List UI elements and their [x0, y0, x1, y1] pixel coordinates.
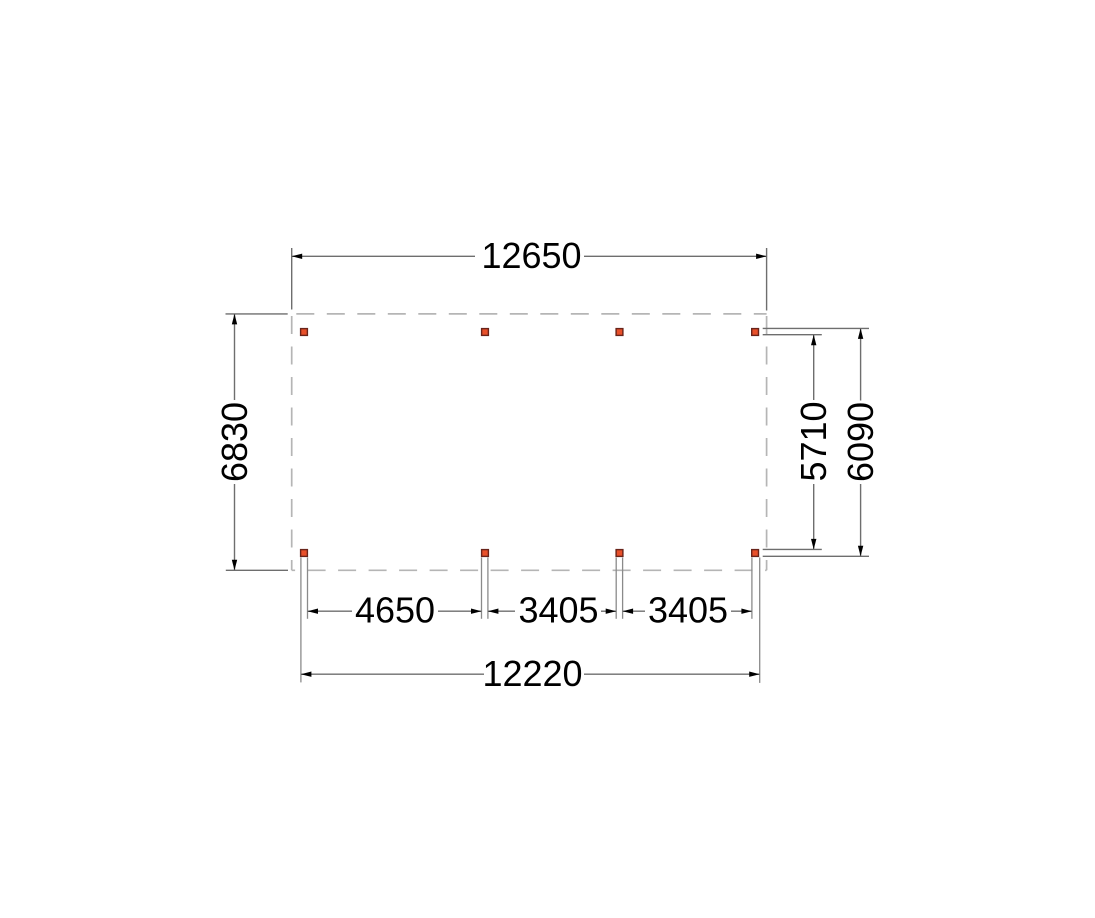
- svg-text:3405: 3405: [648, 589, 728, 630]
- svg-text:4650: 4650: [355, 589, 435, 630]
- svg-text:6830: 6830: [214, 402, 255, 482]
- svg-text:5710: 5710: [793, 401, 834, 481]
- svg-text:12650: 12650: [481, 235, 581, 276]
- svg-text:3405: 3405: [518, 589, 598, 630]
- svg-text:6090: 6090: [840, 402, 881, 482]
- svg-text:12220: 12220: [482, 653, 582, 694]
